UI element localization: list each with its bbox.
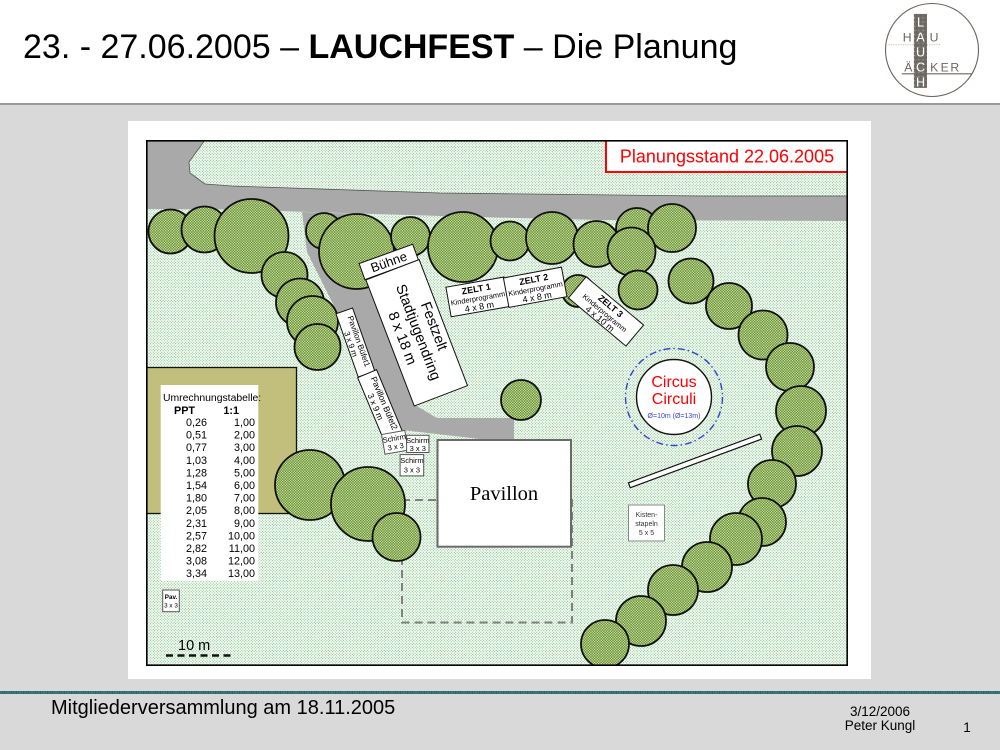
svg-text:Pavillon: Pavillon <box>470 483 538 505</box>
svg-text:E: E <box>941 60 949 74</box>
svg-text:stapeln: stapeln <box>635 521 658 528</box>
svg-text:4,00: 4,00 <box>234 455 255 467</box>
svg-text:11,00: 11,00 <box>229 543 255 555</box>
svg-text:Circuli: Circuli <box>652 391 696 408</box>
svg-text:Schirm: Schirm <box>400 456 423 465</box>
svg-text:0,77: 0,77 <box>186 442 207 454</box>
svg-text:5,00: 5,00 <box>234 467 255 479</box>
svg-text:1:1: 1:1 <box>223 405 239 417</box>
svg-text:5 x 5: 5 x 5 <box>639 530 654 537</box>
svg-text:8,00: 8,00 <box>234 505 255 517</box>
svg-text:C: C <box>916 60 925 74</box>
svg-text:1,80: 1,80 <box>186 493 207 505</box>
svg-text:Umrechnungstabelle:: Umrechnungstabelle: <box>163 393 261 404</box>
svg-text:10 m: 10 m <box>178 638 210 654</box>
svg-text:L: L <box>917 15 924 29</box>
svg-text:Kisten-: Kisten- <box>636 512 658 519</box>
svg-text:2,00: 2,00 <box>234 430 255 442</box>
svg-text:2,82: 2,82 <box>186 543 207 555</box>
svg-text:K: K <box>930 60 938 74</box>
svg-text:H: H <box>903 30 912 44</box>
svg-text:Circus: Circus <box>651 374 696 391</box>
svg-text:2,05: 2,05 <box>186 505 207 517</box>
svg-text:3 x 3: 3 x 3 <box>404 466 420 475</box>
svg-text:Ä: Ä <box>904 60 913 74</box>
svg-text:2,57: 2,57 <box>186 530 207 542</box>
svg-text:1,03: 1,03 <box>186 455 207 467</box>
svg-text:H: H <box>916 75 925 89</box>
svg-text:Pav.: Pav. <box>165 594 178 601</box>
svg-text:3,00: 3,00 <box>234 442 255 454</box>
svg-text:3 x 3: 3 x 3 <box>164 602 178 609</box>
svg-text:2,31: 2,31 <box>186 518 207 530</box>
svg-text:0,51: 0,51 <box>186 430 207 442</box>
svg-text:3,08: 3,08 <box>186 556 207 568</box>
svg-text:Ø=10m (Ø=13m): Ø=10m (Ø=13m) <box>648 413 701 420</box>
svg-text:1,00: 1,00 <box>234 417 255 429</box>
svg-text:0,26: 0,26 <box>186 417 207 429</box>
svg-text:PPT: PPT <box>174 405 195 417</box>
svg-text:U: U <box>930 30 939 44</box>
svg-text:R: R <box>950 60 959 74</box>
svg-text:1,28: 1,28 <box>186 467 207 479</box>
svg-text:Planungsstand 22.06.2005: Planungsstand 22.06.2005 <box>620 147 834 167</box>
svg-text:3,34: 3,34 <box>186 568 207 580</box>
svg-text:9,00: 9,00 <box>234 518 255 530</box>
svg-text:10,00: 10,00 <box>228 530 255 542</box>
svg-text:7,00: 7,00 <box>234 493 255 505</box>
svg-text:U: U <box>916 45 925 59</box>
svg-text:3 x 3: 3 x 3 <box>410 444 426 453</box>
svg-text:A: A <box>916 30 925 44</box>
svg-text:12,00: 12,00 <box>228 556 255 568</box>
svg-text:13,00: 13,00 <box>228 568 255 580</box>
svg-text:1,54: 1,54 <box>186 480 207 492</box>
svg-text:6,00: 6,00 <box>234 480 255 492</box>
